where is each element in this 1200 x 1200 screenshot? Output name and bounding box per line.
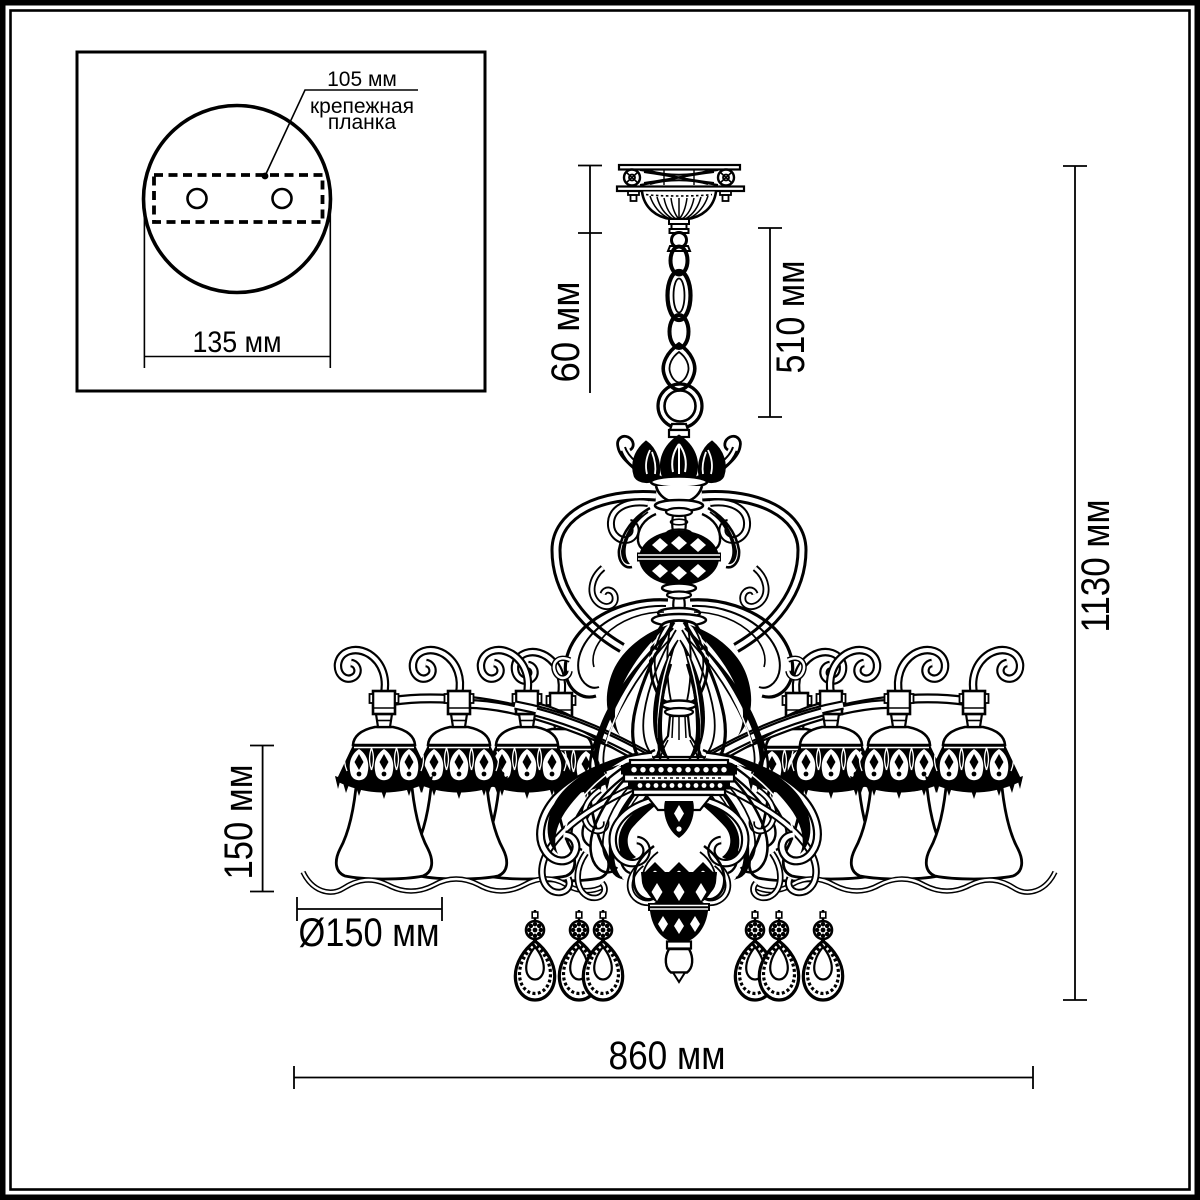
svg-text:1130 мм: 1130 мм [1074, 500, 1118, 633]
svg-text:150 мм: 150 мм [217, 765, 261, 880]
svg-text:планка: планка [328, 111, 397, 134]
svg-text:60 мм: 60 мм [544, 282, 588, 383]
svg-text:105 мм: 105 мм [327, 68, 397, 91]
svg-text:135 мм: 135 мм [193, 326, 282, 359]
svg-text:Ø150 мм: Ø150 мм [299, 911, 440, 955]
svg-text:860 мм: 860 мм [609, 1034, 726, 1078]
svg-text:510 мм: 510 мм [769, 261, 813, 374]
